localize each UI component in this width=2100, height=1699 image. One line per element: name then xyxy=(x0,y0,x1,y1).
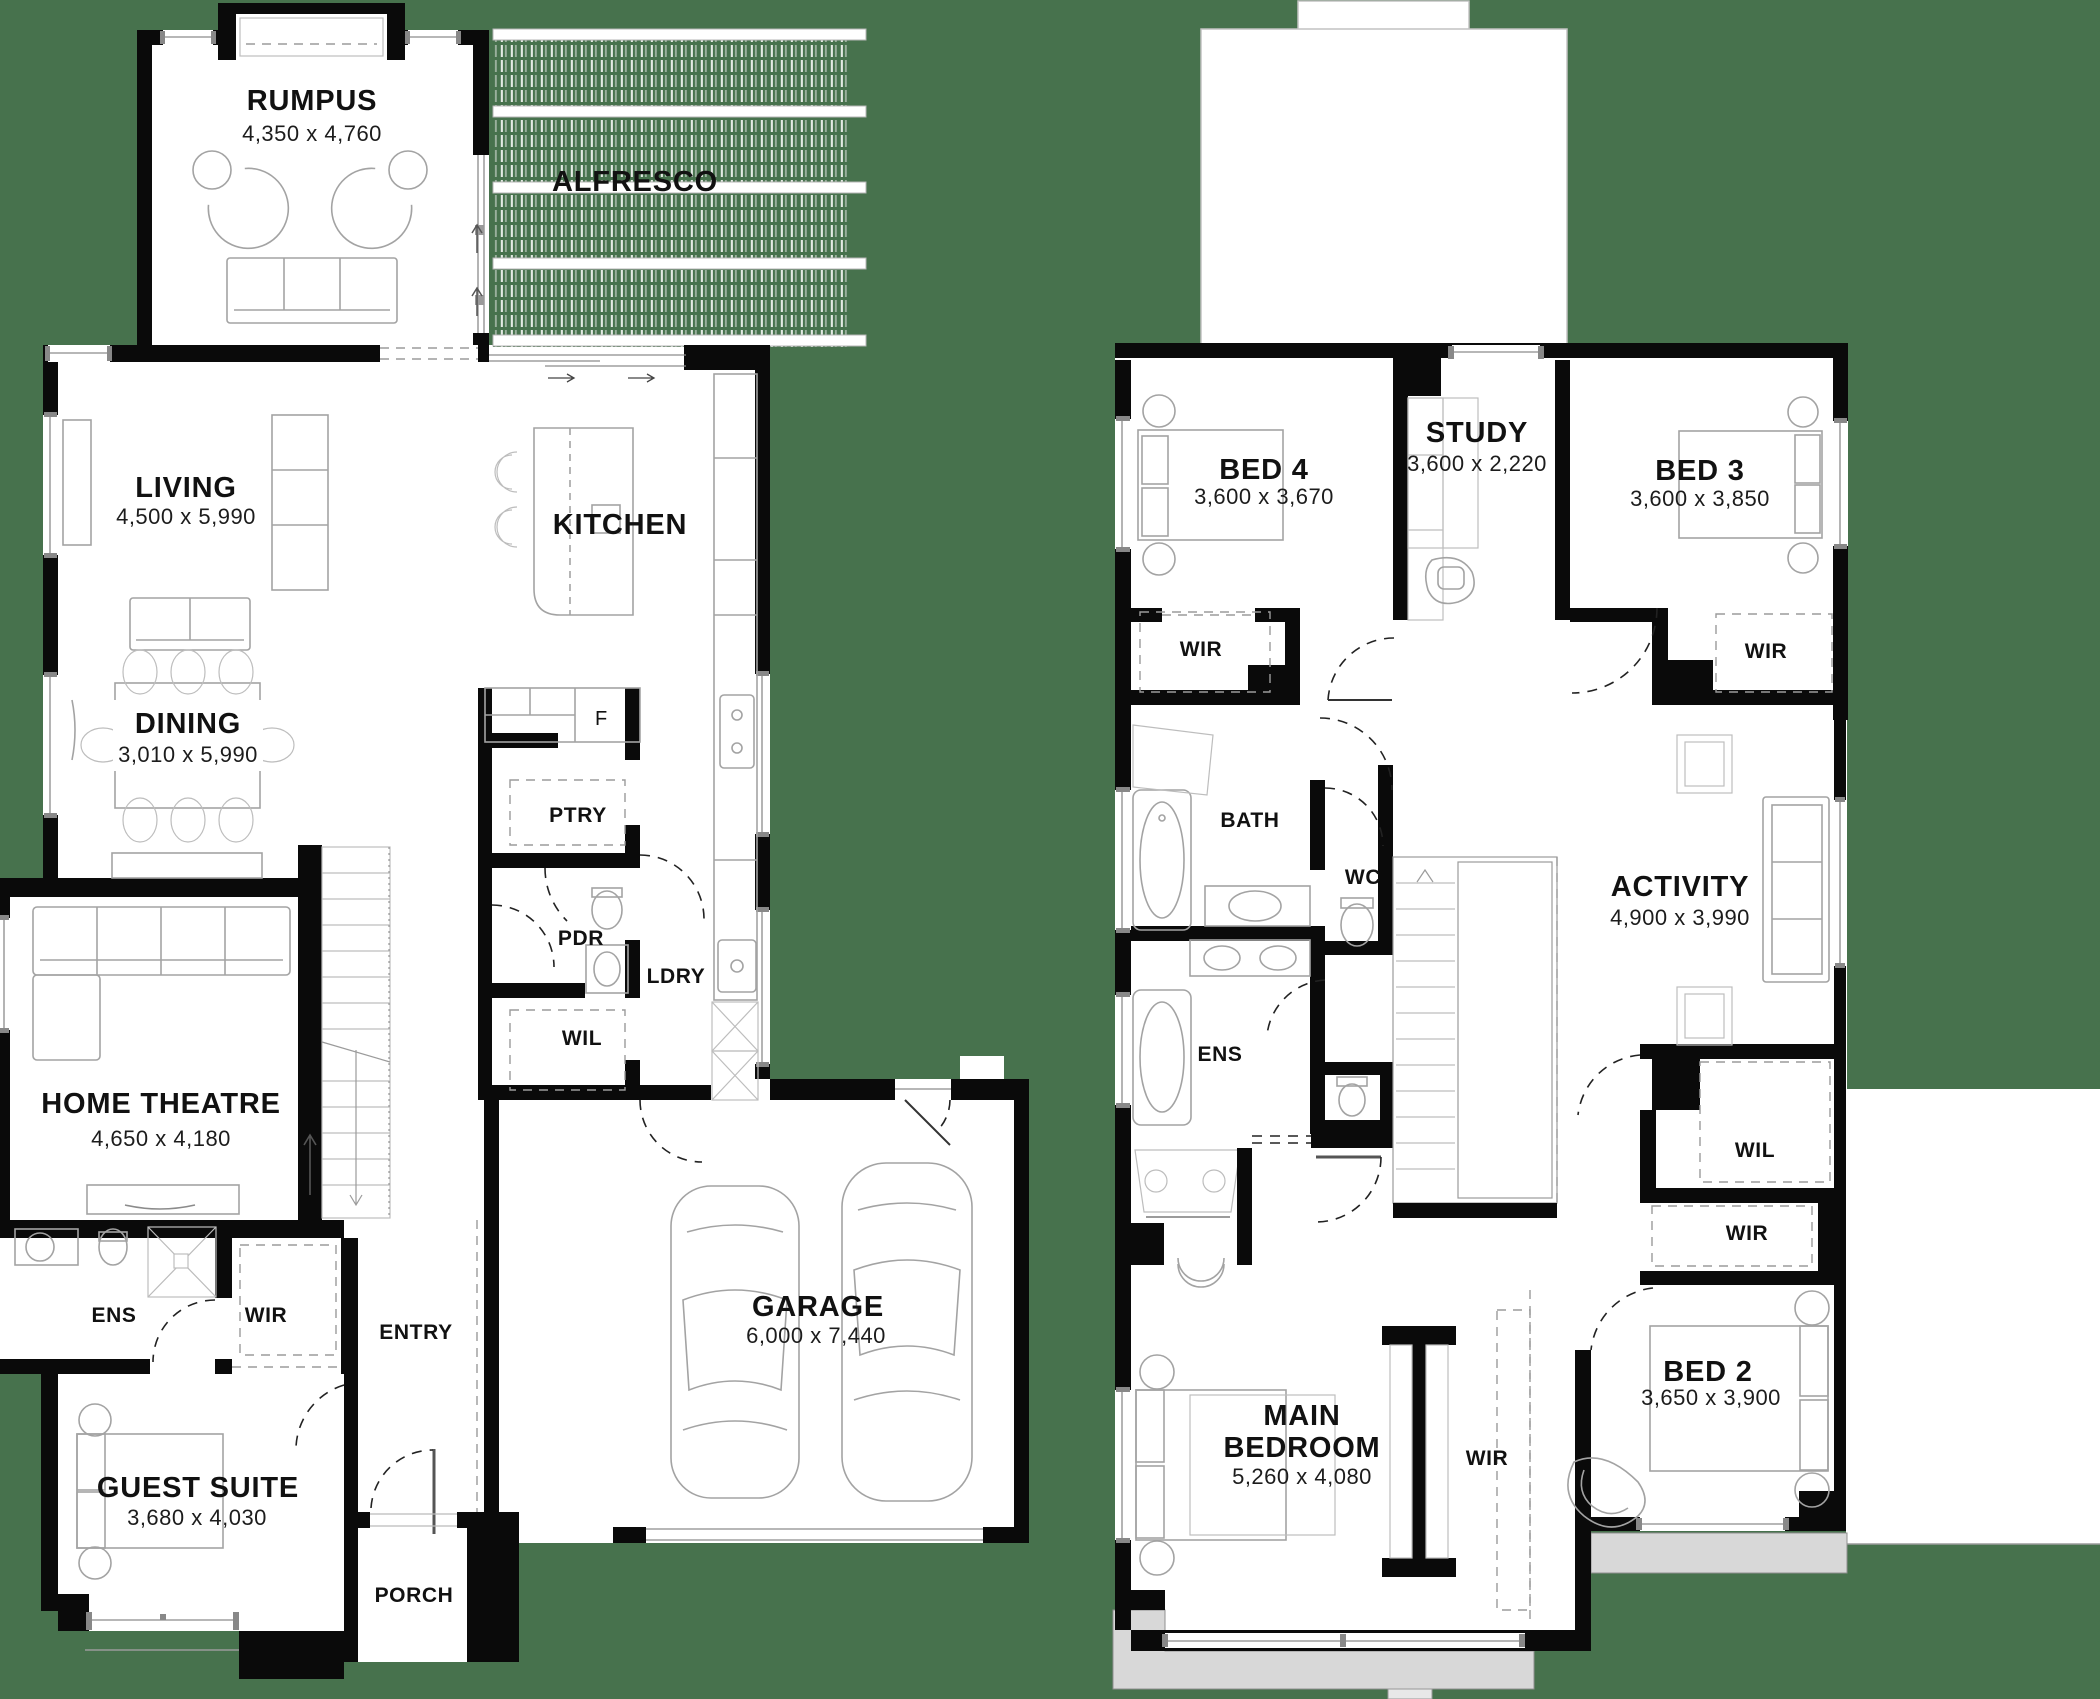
svg-text:PDR: PDR xyxy=(558,927,604,950)
svg-text:3,600 x 2,220: 3,600 x 2,220 xyxy=(1407,451,1547,476)
svg-text:RUMPUS: RUMPUS xyxy=(247,85,377,117)
svg-text:STUDY: STUDY xyxy=(1426,417,1528,449)
svg-text:GUEST SUITE: GUEST SUITE xyxy=(97,1472,299,1504)
svg-text:WIR: WIR xyxy=(1745,640,1788,663)
svg-text:WIR: WIR xyxy=(245,1304,288,1327)
svg-text:ENS: ENS xyxy=(92,1304,137,1327)
svg-text:BATH: BATH xyxy=(1220,809,1279,832)
svg-text:WIR: WIR xyxy=(1180,638,1223,661)
svg-text:ALFRESCO: ALFRESCO xyxy=(552,166,718,198)
svg-text:WC: WC xyxy=(1345,866,1381,889)
svg-text:ENS: ENS xyxy=(1198,1043,1243,1066)
svg-text:F: F xyxy=(595,708,607,730)
svg-text:5,260 x 4,080: 5,260 x 4,080 xyxy=(1232,1464,1372,1489)
svg-text:LIVING: LIVING xyxy=(135,472,236,504)
svg-text:PORCH: PORCH xyxy=(375,1584,454,1607)
svg-text:ACTIVITY: ACTIVITY xyxy=(1611,871,1750,903)
svg-text:WIR: WIR xyxy=(1726,1222,1769,1245)
svg-text:PTRY: PTRY xyxy=(549,804,607,827)
svg-text:GARAGE: GARAGE xyxy=(752,1291,884,1323)
svg-text:DINING: DINING xyxy=(135,708,241,740)
svg-text:BEDROOM: BEDROOM xyxy=(1223,1432,1380,1464)
svg-text:BED 2: BED 2 xyxy=(1663,1356,1752,1388)
svg-text:3,650 x 3,900: 3,650 x 3,900 xyxy=(1641,1385,1781,1410)
svg-text:4,350 x 4,760: 4,350 x 4,760 xyxy=(242,121,382,146)
svg-text:3,680 x 4,030: 3,680 x 4,030 xyxy=(127,1505,267,1530)
svg-text:3,010 x 5,990: 3,010 x 5,990 xyxy=(118,742,258,767)
svg-text:ENTRY: ENTRY xyxy=(379,1321,452,1344)
svg-text:BED 3: BED 3 xyxy=(1655,455,1744,487)
svg-text:LDRY: LDRY xyxy=(647,965,706,988)
svg-text:WIL: WIL xyxy=(562,1027,602,1050)
svg-text:WIR: WIR xyxy=(1466,1447,1509,1470)
svg-text:3,600 x 3,670: 3,600 x 3,670 xyxy=(1194,484,1334,509)
svg-text:4,650 x 4,180: 4,650 x 4,180 xyxy=(91,1126,231,1151)
svg-text:WIL: WIL xyxy=(1735,1139,1775,1162)
svg-text:HOME THEATRE: HOME THEATRE xyxy=(41,1088,280,1120)
svg-text:BED 4: BED 4 xyxy=(1219,454,1308,486)
svg-text:4,900 x 3,990: 4,900 x 3,990 xyxy=(1610,905,1750,930)
svg-text:3,600 x 3,850: 3,600 x 3,850 xyxy=(1630,486,1770,511)
svg-text:6,000 x 7,440: 6,000 x 7,440 xyxy=(746,1323,886,1348)
svg-text:4,500 x 5,990: 4,500 x 5,990 xyxy=(116,504,256,529)
svg-text:MAIN: MAIN xyxy=(1263,1400,1340,1432)
svg-text:KITCHEN: KITCHEN xyxy=(553,509,688,541)
